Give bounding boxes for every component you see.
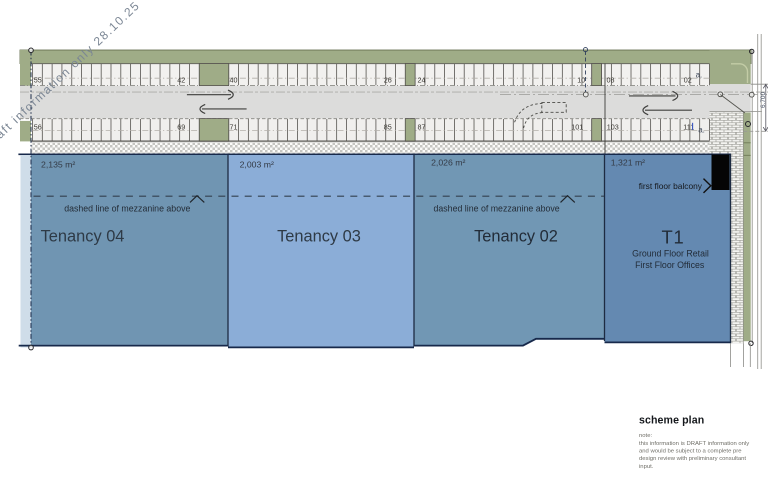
svg-text:55: 55 — [34, 76, 42, 85]
svg-text:71: 71 — [230, 123, 238, 132]
svg-text:this information is DRAFT info: this information is DRAFT information on… — [639, 441, 749, 447]
svg-text:a.: a. — [698, 125, 705, 134]
svg-text:dashed line of mezzanine above: dashed line of mezzanine above — [434, 203, 560, 213]
svg-text:40: 40 — [230, 76, 238, 85]
svg-text:scheme plan: scheme plan — [639, 415, 704, 427]
svg-text:first floor balcony: first floor balcony — [639, 181, 703, 191]
svg-text:Tenancy 04: Tenancy 04 — [41, 227, 125, 245]
svg-text:Ground Floor Retail: Ground Floor Retail — [632, 249, 709, 259]
svg-text:First Floor Offices: First Floor Offices — [635, 260, 705, 270]
svg-text:note:: note: — [639, 433, 652, 439]
svg-text:87: 87 — [418, 123, 426, 132]
svg-text:2,135 m²: 2,135 m² — [41, 159, 75, 169]
svg-text:10: 10 — [577, 76, 585, 85]
svg-text:02: 02 — [684, 76, 692, 85]
svg-text:2,003 m²: 2,003 m² — [240, 159, 274, 169]
svg-text:2,026 m²: 2,026 m² — [431, 157, 465, 167]
svg-text:85: 85 — [384, 123, 392, 132]
svg-text:26: 26 — [384, 76, 392, 85]
svg-text:69: 69 — [177, 123, 185, 132]
svg-text:1,321 m²: 1,321 m² — [611, 157, 645, 167]
svg-text:input.: input. — [639, 464, 654, 470]
svg-text:and would be subject to a comp: and would be subject to a complete pre — [639, 449, 742, 455]
svg-text:dashed line of mezzanine above: dashed line of mezzanine above — [64, 203, 190, 213]
svg-text:103: 103 — [607, 123, 619, 132]
svg-text:design review with preliminary: design review with preliminary consultan… — [639, 456, 746, 462]
svg-text:a.: a. — [696, 70, 703, 79]
svg-text:Tenancy 02: Tenancy 02 — [474, 227, 558, 245]
svg-text:6.700: 6.700 — [760, 92, 767, 108]
svg-text:T1: T1 — [661, 226, 684, 247]
svg-text:101: 101 — [571, 123, 583, 132]
svg-text:08: 08 — [607, 76, 615, 85]
svg-text:42: 42 — [177, 76, 185, 85]
svg-text:56: 56 — [34, 123, 42, 132]
svg-text:24: 24 — [418, 76, 426, 85]
svg-text:Tenancy 03: Tenancy 03 — [277, 227, 361, 245]
